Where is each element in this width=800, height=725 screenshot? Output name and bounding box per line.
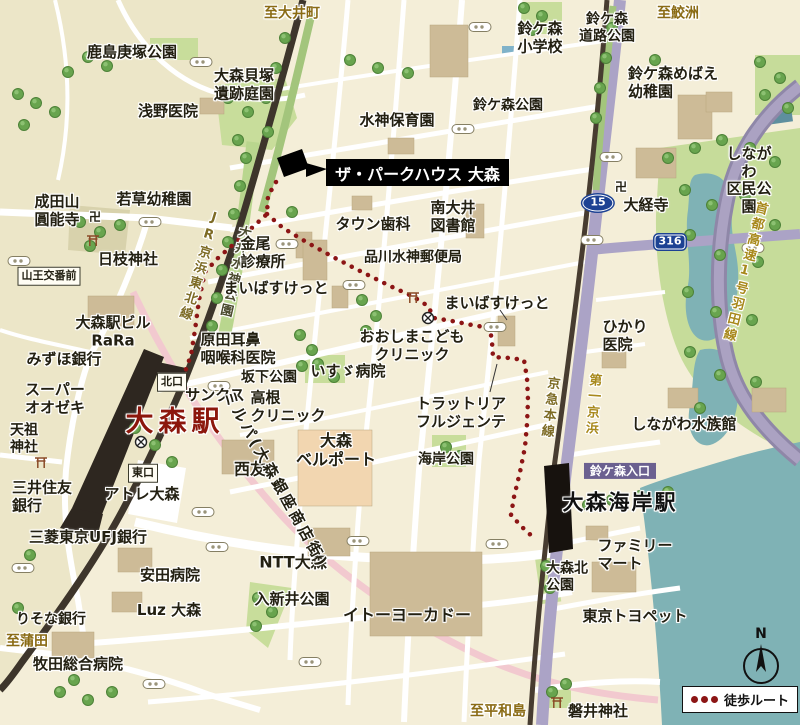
bus-stop-icon [452, 125, 474, 134]
bus-stop-icon [581, 236, 603, 245]
property-callout-label: ザ・パークハウス 大森 [335, 161, 500, 185]
bus-stop-icon [347, 537, 369, 546]
route-dot-icon [691, 696, 698, 703]
koban-icon [423, 313, 434, 324]
bus-stop-icon [208, 382, 230, 391]
bus-stop-icon [299, 658, 321, 667]
bus-stop-icon [12, 564, 34, 573]
bus-stop-icon [484, 323, 506, 332]
compass: N [733, 622, 789, 694]
bus-stop-icon [143, 680, 165, 689]
area-map: 至大井町鹿島庚塚公園大森貝塚 遺跡庭園浅野医院鈴ケ森 小学校鈴ケ森 道路公園至鮫… [0, 0, 800, 725]
property-callout: ザ・パークハウス 大森 [326, 159, 509, 186]
route-dot-icon [701, 696, 708, 703]
bus-stop-icon [276, 240, 298, 249]
bus-stop-icon [206, 543, 228, 552]
compass-needle-icon [756, 644, 766, 672]
bus-stop-icon [139, 218, 161, 227]
bus-stop-icon [469, 23, 491, 32]
route-dot-icon [711, 696, 718, 703]
bus-stop-icon [343, 281, 365, 290]
map-base [0, 0, 800, 725]
bus-stop-icon [190, 58, 212, 67]
omorikaigan-station-building [544, 463, 573, 553]
koban-icon [136, 437, 147, 448]
compass-north-label: N [755, 626, 767, 642]
bus-stop-icon [192, 508, 214, 517]
bus-stop-icon [742, 244, 764, 253]
bus-stop-icon [600, 153, 622, 162]
bus-stop-icon [486, 540, 508, 549]
bus-stop-icon [8, 257, 30, 266]
